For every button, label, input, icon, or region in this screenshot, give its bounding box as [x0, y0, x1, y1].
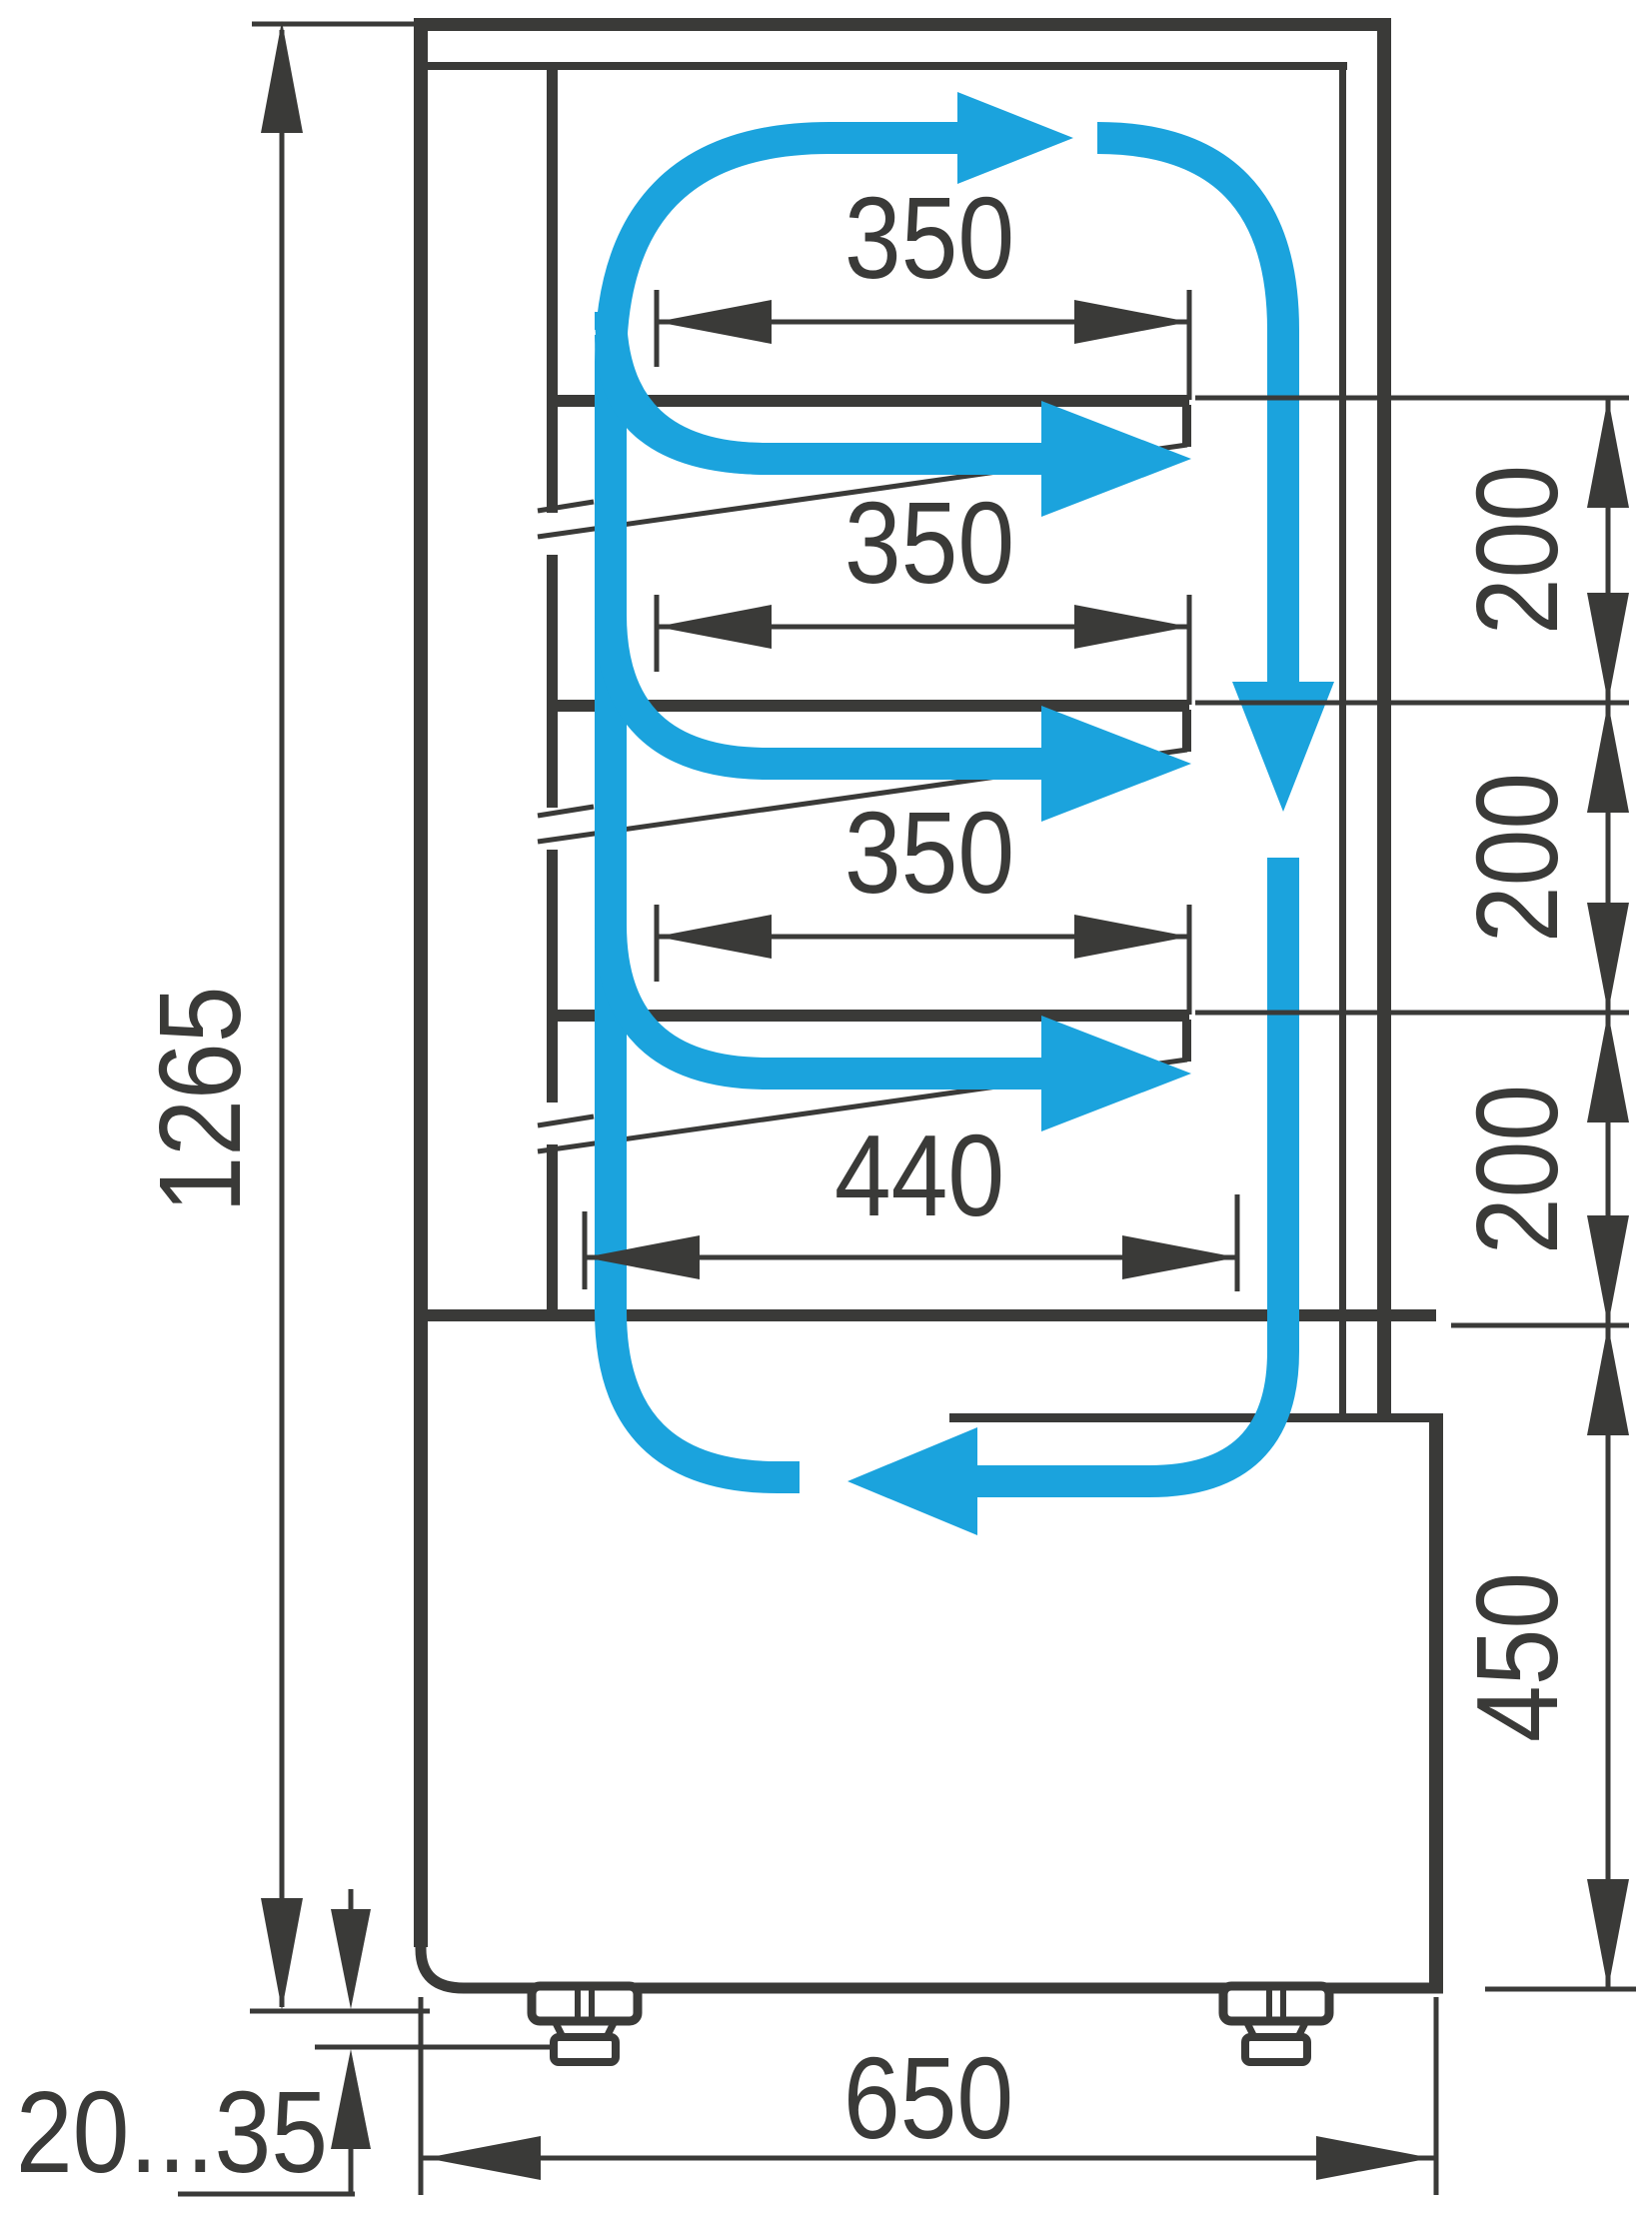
- duct-panel-segment: [547, 555, 558, 808]
- base-bottom: [421, 1934, 1443, 1988]
- label-shelf1-depth: 350: [776, 168, 1083, 308]
- label-leg-range: 20...35: [14, 2062, 331, 2202]
- shelf-1-slot-stub: [538, 502, 594, 511]
- leg-left: [532, 1986, 638, 2062]
- leg-right: [1223, 1986, 1329, 2062]
- canopy-top: [415, 18, 1391, 31]
- label-overall-height: 1265: [130, 946, 270, 1253]
- duct-panel-segment: [547, 68, 558, 513]
- label-gap1: 200: [1447, 396, 1587, 704]
- label-overall-depth: 650: [775, 2028, 1082, 2168]
- right-wall-outer: [1377, 18, 1391, 1419]
- label-gap3: 200: [1447, 1016, 1587, 1323]
- label-deck-depth: 440: [766, 1106, 1073, 1245]
- base-sill: [949, 1413, 1441, 1422]
- label-base-height: 450: [1447, 1503, 1587, 1811]
- leg-right-foot: [1245, 2037, 1307, 2062]
- dim-right-stack: [1587, 398, 1629, 1989]
- duct-panel-segment: [547, 850, 558, 1103]
- dim-leg-range: [331, 1889, 371, 2194]
- shelf-3-slot-stub: [538, 1116, 594, 1125]
- label-shelf2-depth: 350: [776, 473, 1083, 613]
- shelf-2-slot-stub: [538, 807, 594, 816]
- base-right-wall: [1429, 1413, 1443, 1988]
- label-gap2: 200: [1447, 704, 1587, 1012]
- leg-left-foot: [554, 2037, 616, 2062]
- label-shelf3-depth: 350: [776, 783, 1083, 923]
- canopy-underside: [421, 62, 1347, 70]
- duct-panel-segment: [547, 1144, 558, 1309]
- airflow-arrow-return: [847, 1427, 977, 1535]
- diagram-canvas: 350 350 350 440 1265 200 200 200 450 650…: [0, 0, 1652, 2214]
- right-wall-inner: [1339, 62, 1346, 1419]
- left-wall: [414, 18, 428, 1947]
